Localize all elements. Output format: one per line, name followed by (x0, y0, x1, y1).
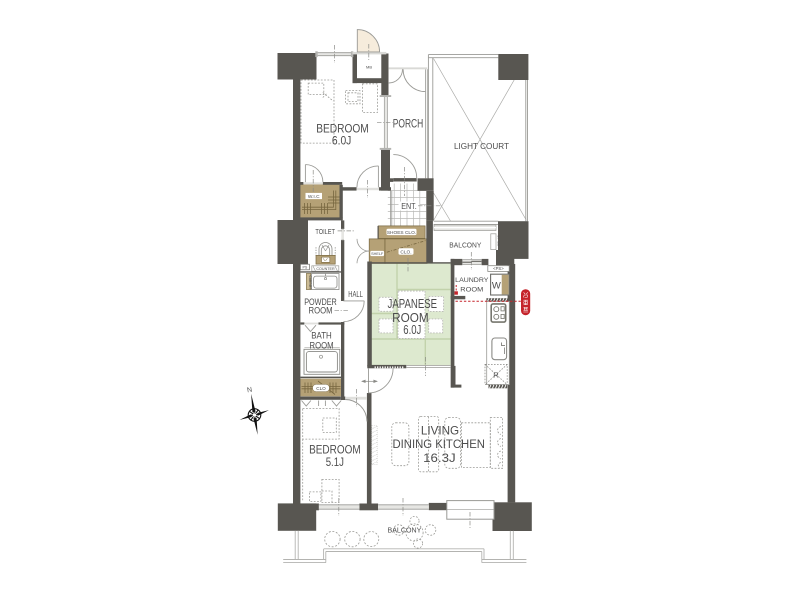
svg-text:R: R (493, 371, 499, 380)
svg-text:W: W (492, 280, 501, 291)
svg-text:COUNTER: COUNTER (316, 267, 335, 271)
svg-text:6.0J: 6.0J (332, 133, 352, 147)
svg-text:PORCH: PORCH (393, 119, 424, 131)
svg-text:PS: PS (303, 266, 308, 270)
svg-text:ROOM: ROOM (310, 341, 334, 351)
svg-text:SHELF: SHELF (371, 252, 384, 256)
svg-text:ENT.: ENT. (401, 201, 417, 211)
svg-text:CLO: CLO (316, 386, 326, 391)
svg-text:W.I.C: W.I.C (308, 194, 320, 200)
svg-text:<PS>: <PS> (493, 266, 504, 271)
svg-text:MB: MB (366, 64, 372, 69)
svg-text:CLO.: CLO. (400, 250, 411, 256)
svg-text:DINING KITCHEN: DINING KITCHEN (392, 437, 485, 451)
svg-text:HALL: HALL (348, 290, 363, 299)
svg-text:JAPANESE: JAPANESE (388, 297, 438, 311)
svg-text:LIVING: LIVING (421, 424, 459, 438)
svg-text:6.0J: 6.0J (403, 323, 421, 337)
svg-text:BATH: BATH (311, 331, 332, 341)
svg-text:5.1J: 5.1J (326, 455, 344, 469)
svg-text:LIGHT COURT: LIGHT COURT (454, 141, 510, 151)
svg-text:BALCONY: BALCONY (388, 525, 422, 534)
svg-text:N: N (247, 387, 253, 395)
svg-text:BCL·LB: BCL·LB (497, 235, 501, 246)
svg-text:CABINET: CABINET (308, 275, 312, 289)
svg-text:LAUNDRY: LAUNDRY (455, 277, 489, 284)
svg-text:TOILET: TOILET (315, 227, 335, 236)
svg-text:ROOM: ROOM (460, 287, 483, 294)
svg-text:BALCONY: BALCONY (449, 241, 481, 250)
svg-text:16.3J: 16.3J (423, 451, 456, 465)
svg-text:SHOES CLO.: SHOES CLO. (387, 230, 416, 236)
svg-text:ROOM: ROOM (309, 305, 333, 315)
